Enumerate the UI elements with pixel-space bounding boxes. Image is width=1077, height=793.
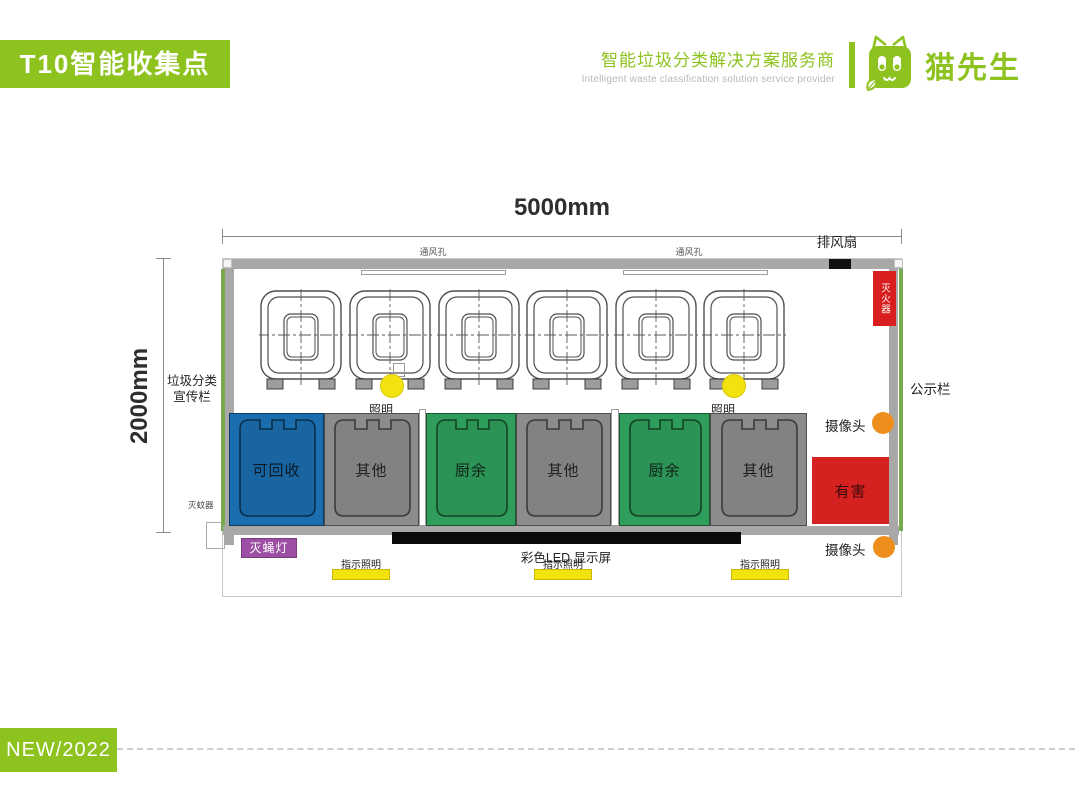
waste-block-label: 厨余 <box>620 459 709 480</box>
camera-dot <box>873 536 895 558</box>
notice-board-label: 公示栏 <box>910 378 951 398</box>
publicity-board-label: 垃圾分类 宣传栏 <box>160 373 224 405</box>
slide: T10智能收集点 智能垃圾分类解决方案服务商 Intelligent waste… <box>0 0 1077 793</box>
floor-plan: 通风孔 通风孔 灭火器 <box>222 258 902 597</box>
hazard-bin: 有害 <box>812 457 889 524</box>
divider-slat <box>419 409 426 526</box>
camera-label: 摄像头 <box>825 539 866 559</box>
notice-board <box>899 269 903 531</box>
publicity-board <box>221 269 225 531</box>
indicator-light-bar <box>534 569 592 580</box>
footer-dashed-line <box>117 748 1075 750</box>
top-wall <box>223 259 903 269</box>
hazard-bin-label: 有害 <box>812 480 889 501</box>
corner-post <box>894 259 903 268</box>
dimension-tick <box>156 258 171 259</box>
tagline-en: Intelligent waste classification solutio… <box>582 74 835 85</box>
waste-block-label: 厨余 <box>427 459 515 480</box>
dimension-tick <box>222 229 223 244</box>
tagline-cn: 智能垃圾分类解决方案服务商 <box>582 46 835 71</box>
exhaust-fan <box>829 259 851 269</box>
header-divider <box>849 42 855 88</box>
vent-slot <box>623 270 768 275</box>
camera-dot <box>872 412 894 434</box>
waste-block-label: 其他 <box>711 459 806 480</box>
exhaust-fan-label: 排风扇 <box>817 231 858 251</box>
bin-topview <box>614 289 698 393</box>
corner-post <box>223 259 232 268</box>
waste-block-5: 其他 <box>710 413 807 526</box>
bin-topview <box>437 289 521 393</box>
vent-label: 通风孔 <box>675 245 702 258</box>
indicator-light-bar <box>731 569 789 580</box>
led-screen <box>392 532 741 544</box>
mosquito-killer-label: 灭蚊器 <box>188 499 214 511</box>
divider-slat <box>611 409 619 526</box>
header-brand-area: 智能垃圾分类解决方案服务商 Intelligent waste classifi… <box>582 40 1021 90</box>
bin-topview <box>702 289 786 393</box>
dimension-tick <box>156 532 171 533</box>
fire-extinguisher: 灭火器 <box>873 271 896 326</box>
bin-topview <box>259 289 343 393</box>
indicator-light-bar <box>332 569 390 580</box>
height-dimension-label: 2000mm <box>126 348 154 444</box>
vent-slot <box>361 270 506 275</box>
bin-topview <box>525 289 609 393</box>
waste-block-3: 其他 <box>516 413 611 526</box>
waste-block-label: 其他 <box>325 459 418 480</box>
camera-label: 摄像头 <box>825 415 866 435</box>
fly-lamp: 灭蝇灯 <box>241 538 297 558</box>
waste-block-4: 厨余 <box>619 413 710 526</box>
brand-name: 猫先生 <box>925 43 1021 87</box>
lighting-dot <box>380 374 404 398</box>
waste-block-label: 其他 <box>517 459 610 480</box>
dimension-tick <box>901 229 902 244</box>
width-dimension-label: 5000mm <box>482 194 642 222</box>
width-dimension-line <box>222 236 902 237</box>
waste-block-label: 可回收 <box>230 459 323 480</box>
taglines: 智能垃圾分类解决方案服务商 Intelligent waste classifi… <box>582 46 835 85</box>
page-title: T10智能收集点 <box>0 40 230 88</box>
waste-block-0: 可回收 <box>229 413 324 526</box>
new-year-badge: NEW/2022 <box>0 728 117 772</box>
vent-label: 通风孔 <box>419 245 446 258</box>
lighting-dot <box>722 374 746 398</box>
waste-block-1: 其他 <box>324 413 419 526</box>
cat-logo-icon <box>865 35 915 96</box>
waste-block-2: 厨余 <box>426 413 516 526</box>
